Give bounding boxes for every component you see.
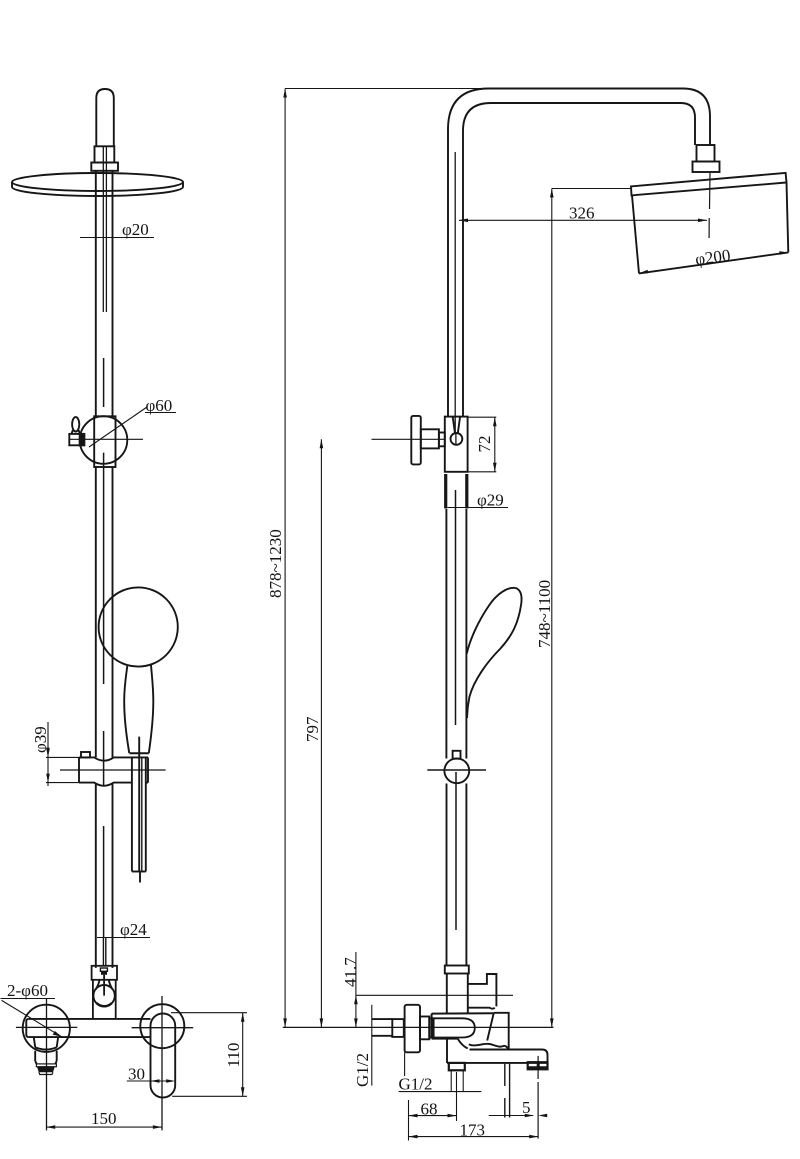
svg-text:878~1230: 878~1230 bbox=[266, 529, 285, 598]
svg-text:φ29: φ29 bbox=[477, 491, 504, 510]
svg-text:φ20: φ20 bbox=[122, 220, 149, 239]
svg-text:5: 5 bbox=[522, 1098, 531, 1117]
svg-text:110: 110 bbox=[224, 1043, 243, 1068]
svg-text:68: 68 bbox=[421, 1100, 438, 1119]
svg-text:2-φ60: 2-φ60 bbox=[7, 981, 48, 1000]
svg-text:G1/2: G1/2 bbox=[353, 1053, 372, 1087]
svg-text:748~1100: 748~1100 bbox=[535, 580, 554, 648]
svg-text:72: 72 bbox=[475, 436, 494, 453]
svg-text:G1/2: G1/2 bbox=[399, 1075, 433, 1094]
svg-text:326: 326 bbox=[569, 204, 595, 223]
svg-text:150: 150 bbox=[91, 1109, 117, 1128]
svg-text:41.7: 41.7 bbox=[341, 957, 360, 987]
svg-text:φ24: φ24 bbox=[120, 920, 147, 939]
svg-text:173: 173 bbox=[460, 1121, 486, 1140]
svg-text:φ60: φ60 bbox=[146, 396, 173, 415]
svg-text:797: 797 bbox=[303, 716, 322, 742]
svg-text:φ39: φ39 bbox=[31, 726, 50, 753]
